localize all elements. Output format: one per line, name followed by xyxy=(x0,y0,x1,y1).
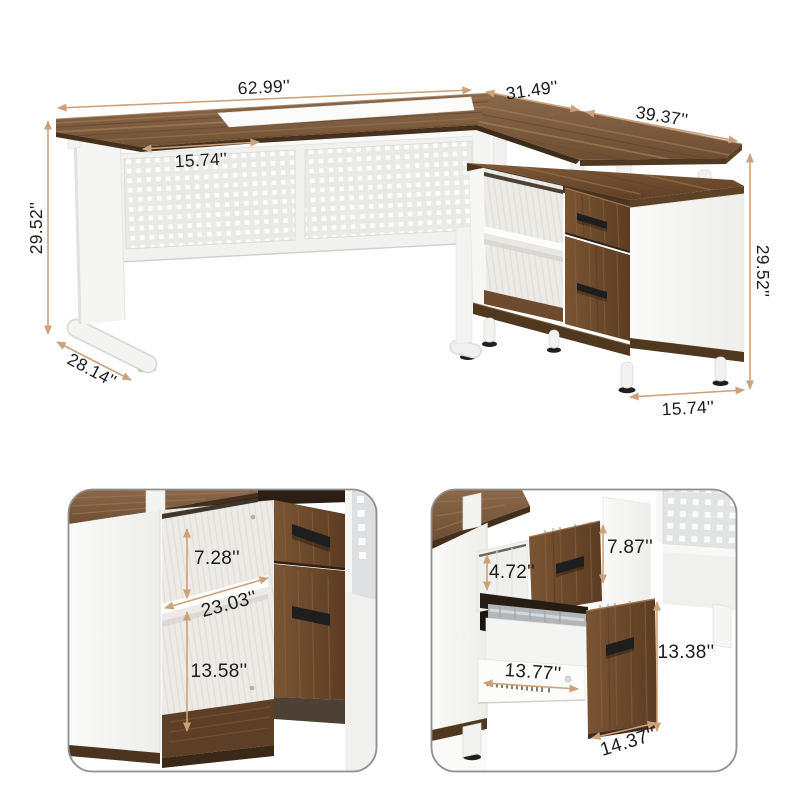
shelf-detail-card: 7.28'' 23.03'' 13.58'' xyxy=(69,489,377,772)
cabinet-side-panel xyxy=(630,194,744,352)
dim-bottom-drawer-front: 13.38'' xyxy=(658,642,715,663)
detail-side-panel xyxy=(69,510,160,764)
dim-desk-width: 62.99'' xyxy=(237,76,291,99)
dim-cabinet-depth: 15.74'' xyxy=(661,397,715,420)
detail-mesh-edge xyxy=(345,490,376,771)
dim-upper-shelf-height: 7.28'' xyxy=(194,548,240,569)
dim-inner-height: 4.72'' xyxy=(489,562,535,583)
dim-lower-shelf-height: 13.58'' xyxy=(191,661,248,682)
dim-height-right: 29.52'' xyxy=(753,245,773,298)
dim-top-inset: 15.74'' xyxy=(174,149,228,172)
support-post xyxy=(463,493,481,530)
desk-illustration: 62.99'' 15.74'' 31.49'' 39.37'' 29.52'' … xyxy=(26,76,800,420)
drawer-front-lower xyxy=(565,236,630,341)
dim-slide-length: 13.77'' xyxy=(504,660,562,685)
dim-height-left: 29.52'' xyxy=(26,202,46,255)
product-dimension-sheet: 62.99'' 15.74'' 31.49'' 39.37'' 29.52'' … xyxy=(0,0,800,800)
detail-drawers xyxy=(274,500,345,724)
mesh-panel-right xyxy=(305,141,472,239)
modesty-panel xyxy=(118,136,477,262)
dimension-diagram-svg: 62.99'' 15.74'' 31.49'' 39.37'' 29.52'' … xyxy=(0,0,800,800)
dim-line-cabinet-depth xyxy=(630,390,744,397)
dim-top-drawer-front: 7.87'' xyxy=(607,537,653,558)
drawer-detail-card: 4.72'' 7.87'' 13.38'' 13.77'' 14.37'' xyxy=(432,490,737,772)
dim-back-edge-left: 31.49'' xyxy=(505,76,560,103)
